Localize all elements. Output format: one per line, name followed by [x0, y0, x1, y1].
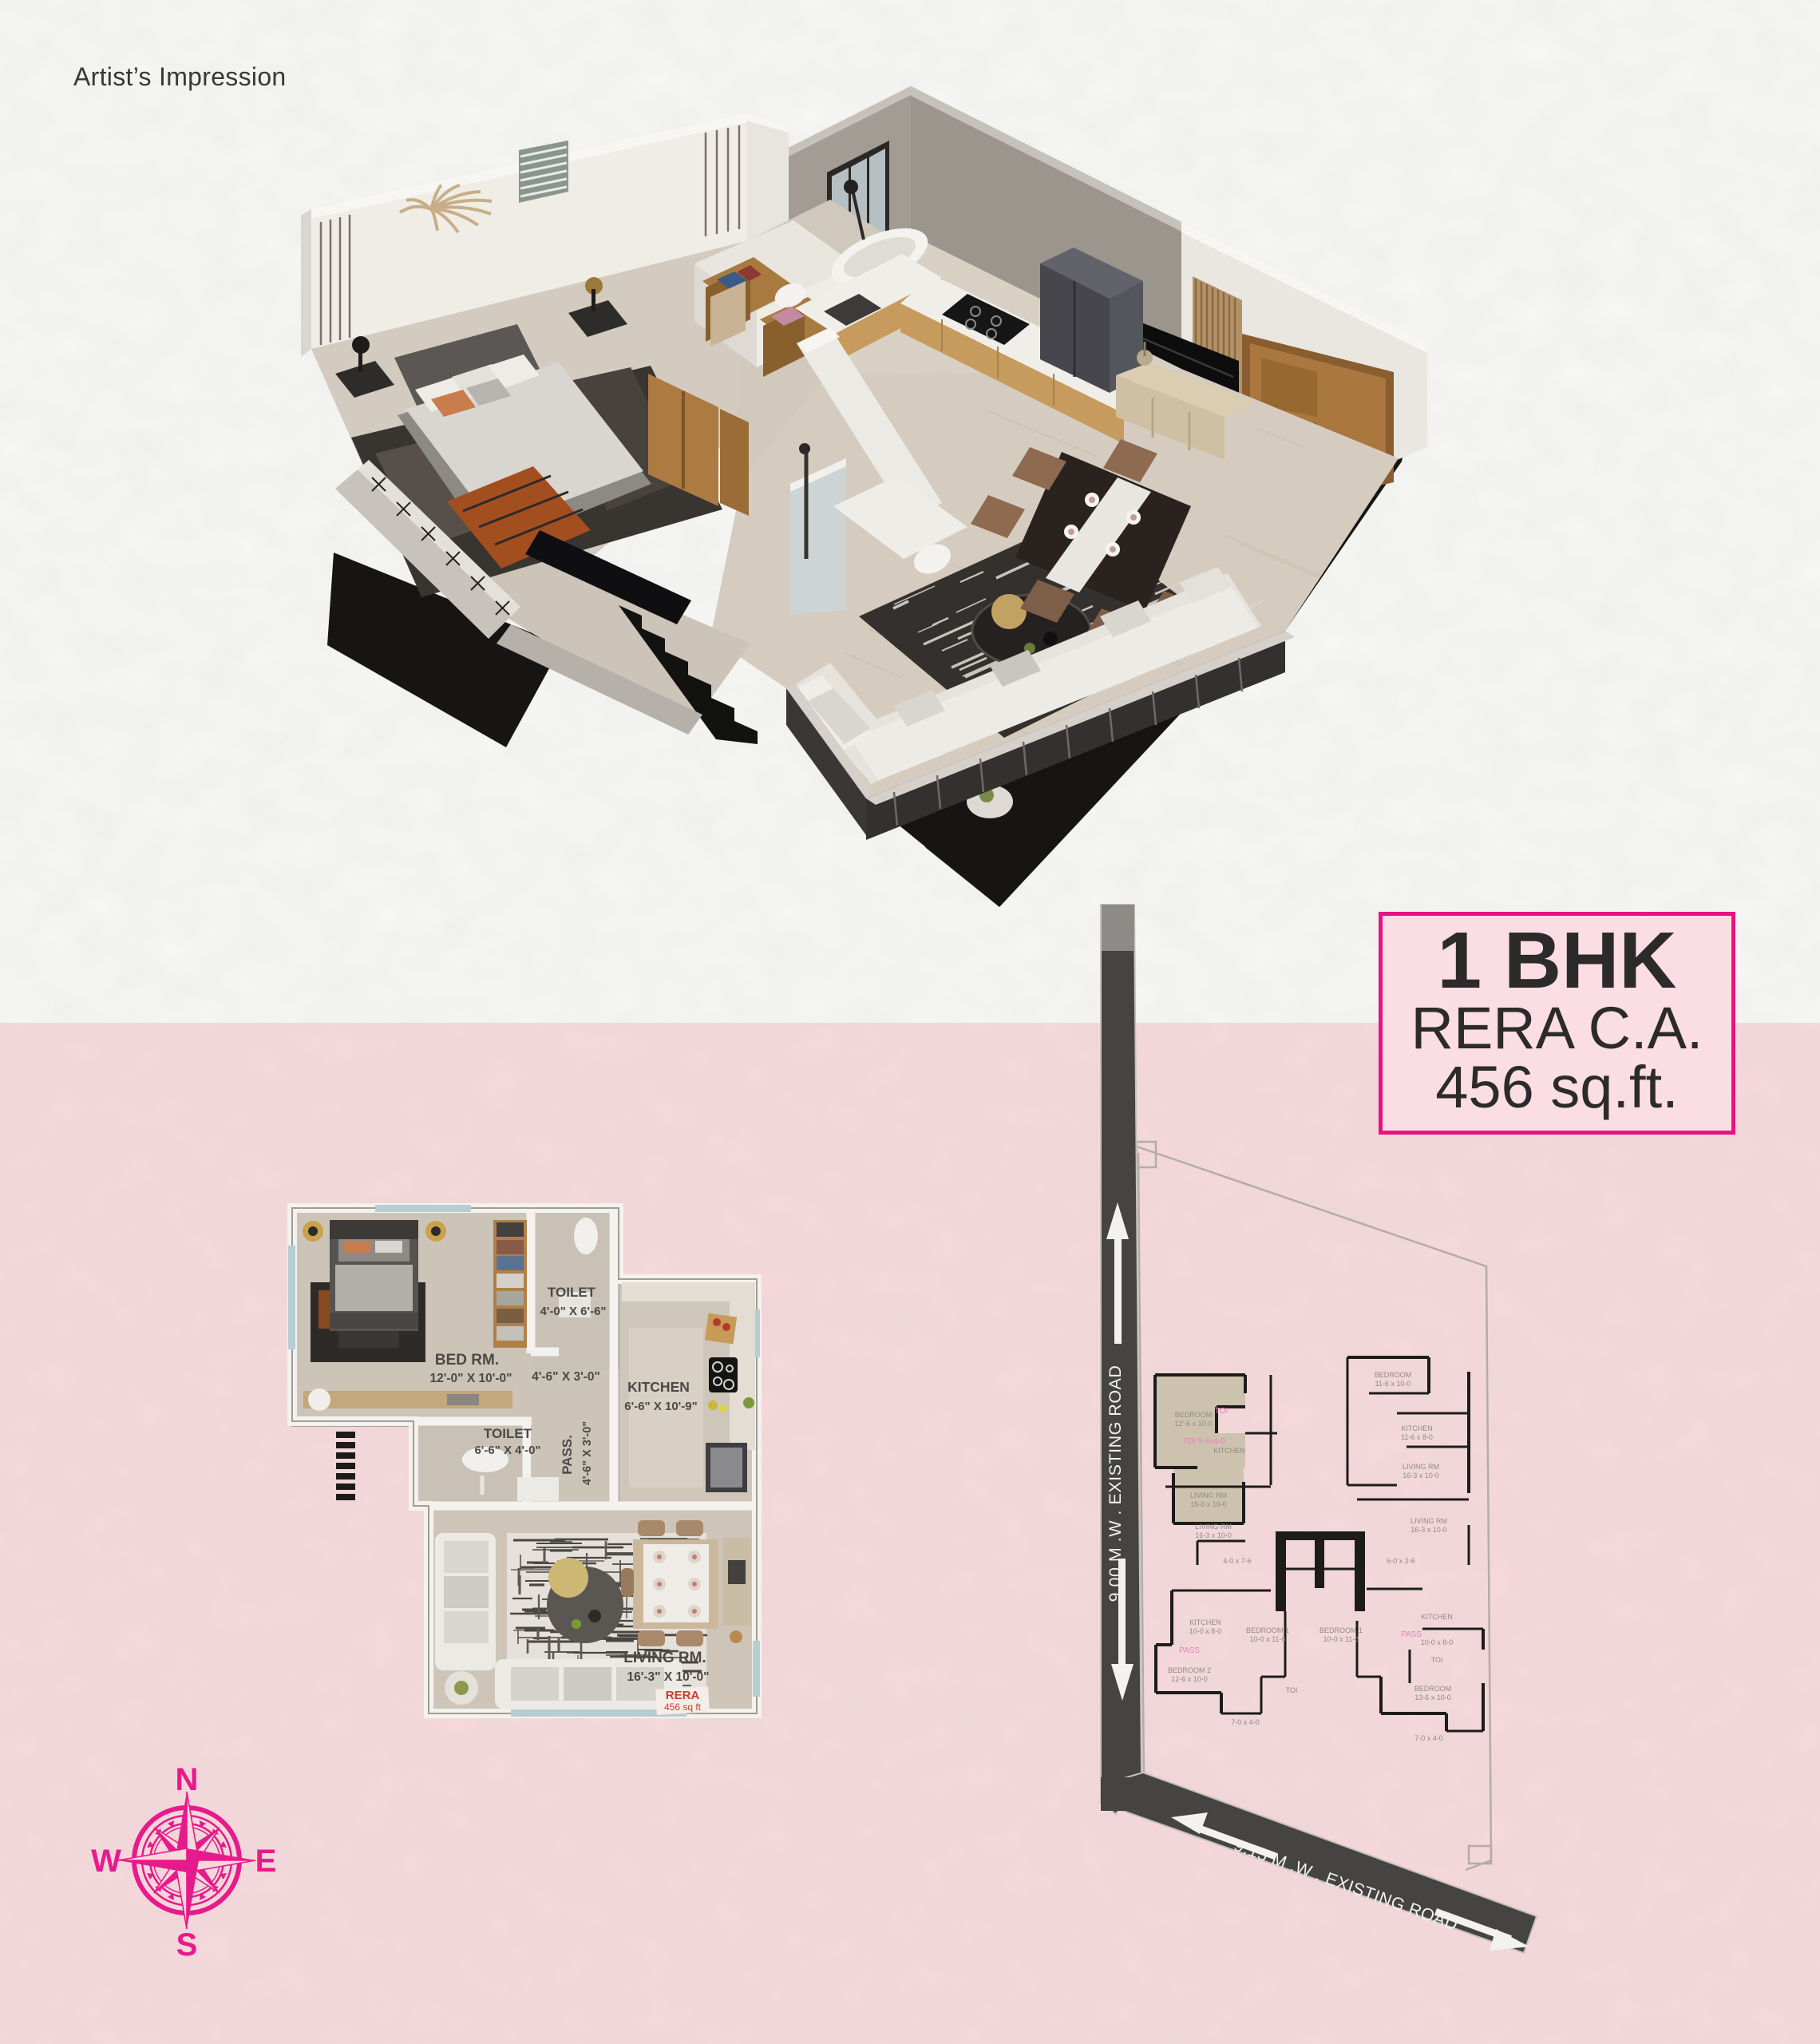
- svg-text:TOI: TOI: [1215, 1407, 1228, 1416]
- svg-text:16-3 x 10-0: 16-3 x 10-0: [1195, 1531, 1232, 1539]
- svg-text:BED RM.: BED RM.: [435, 1352, 499, 1369]
- svg-text:KITCHEN: KITCHEN: [627, 1379, 690, 1395]
- svg-text:LIVING RM: LIVING RM: [1410, 1517, 1447, 1525]
- svg-text:16-3 x 10-0: 16-3 x 10-0: [1403, 1472, 1439, 1480]
- svg-text:6'-6" X 4'-0": 6'-6" X 4'-0": [474, 1444, 540, 1457]
- svg-text:12'-6 x 10-0: 12'-6 x 10-0: [1174, 1420, 1212, 1428]
- svg-text:RERA: RERA: [666, 1689, 700, 1702]
- svg-text:16-3 x 10-0: 16-3 x 10-0: [1410, 1526, 1447, 1534]
- svg-text:10-0 x 8-0: 10-0 x 8-0: [1421, 1638, 1454, 1646]
- svg-text:12'-0" X 10'-0": 12'-0" X 10'-0": [429, 1372, 512, 1385]
- svg-text:E: E: [255, 1844, 277, 1879]
- svg-text:BEDROOM: BEDROOM: [1175, 1411, 1213, 1419]
- svg-text:6'-6" X 10'-9": 6'-6" X 10'-9": [624, 1400, 697, 1413]
- svg-text:BEDROOM 1: BEDROOM 1: [1246, 1626, 1289, 1634]
- svg-text:LIVING RM.: LIVING RM.: [623, 1650, 706, 1666]
- svg-text:TOI: TOI: [1286, 1686, 1298, 1694]
- svg-text:KITCHEN: KITCHEN: [1213, 1447, 1245, 1455]
- svg-text:7-0 x 4-0: 7-0 x 4-0: [1414, 1734, 1443, 1742]
- svg-text:PASS: PASS: [1179, 1646, 1200, 1655]
- svg-text:KITCHEN: KITCHEN: [1401, 1424, 1433, 1432]
- svg-text:N: N: [176, 1762, 199, 1797]
- svg-text:11-6 x 10-0: 11-6 x 10-0: [1375, 1380, 1411, 1388]
- svg-text:6-0 x 2-6: 6-0 x 2-6: [1387, 1557, 1415, 1565]
- svg-text:LIVING RM: LIVING RM: [1403, 1463, 1439, 1471]
- svg-text:4-0 x 7-6: 4-0 x 7-6: [1223, 1557, 1252, 1565]
- svg-text:TOILET: TOILET: [484, 1426, 532, 1441]
- svg-text:13-6 x 10-0: 13-6 x 10-0: [1414, 1693, 1451, 1701]
- svg-text:BEDROOM: BEDROOM: [1375, 1371, 1412, 1379]
- svg-text:TOI 5-6x4-0: TOI 5-6x4-0: [1182, 1437, 1225, 1446]
- svg-text:BEDROOM: BEDROOM: [1414, 1685, 1452, 1693]
- svg-text:PASS.: PASS.: [560, 1435, 575, 1475]
- svg-text:S: S: [176, 1927, 198, 1963]
- svg-text:16'-3" X 10'-0": 16'-3" X 10'-0": [627, 1670, 709, 1684]
- svg-text:456 sq ft: 456 sq ft: [664, 1701, 702, 1713]
- svg-text:4'-6" X 3'-0": 4'-6" X 3'-0": [581, 1421, 594, 1485]
- svg-text:W: W: [91, 1844, 121, 1879]
- svg-text:PASS: PASS: [1401, 1630, 1422, 1639]
- svg-text:KITCHEN: KITCHEN: [1421, 1613, 1453, 1621]
- svg-text:LIVING RM: LIVING RM: [1190, 1491, 1227, 1499]
- svg-text:KITCHEN: KITCHEN: [1189, 1618, 1221, 1626]
- svg-text:BEDROOM 1: BEDROOM 1: [1319, 1626, 1363, 1634]
- svg-text:10-0 x 8-0: 10-0 x 8-0: [1189, 1627, 1222, 1635]
- svg-text:11-6 x 8-0: 11-6 x 8-0: [1401, 1433, 1433, 1441]
- svg-text:7-0 x 4-0: 7-0 x 4-0: [1231, 1718, 1260, 1726]
- svg-text:4'-6" X 3'-0": 4'-6" X 3'-0": [532, 1370, 600, 1384]
- svg-text:LIVING RM: LIVING RM: [1195, 1523, 1232, 1531]
- svg-text:4'-0" X 6'-6": 4'-0" X 6'-6": [540, 1305, 606, 1318]
- svg-text:TOILET: TOILET: [548, 1285, 596, 1300]
- svg-text:9.00 M .W . EXISTING ROAD: 9.00 M .W . EXISTING ROAD: [1106, 1365, 1125, 1602]
- svg-text:BEDROOM 2: BEDROOM 2: [1168, 1666, 1211, 1674]
- svg-text:10-0 x 11-6: 10-0 x 11-6: [1250, 1635, 1286, 1643]
- svg-text:TOI: TOI: [1431, 1656, 1443, 1664]
- svg-text:10-0 x 11-6: 10-0 x 11-6: [1323, 1635, 1359, 1643]
- svg-text:16-0 x 10-0: 16-0 x 10-0: [1190, 1500, 1227, 1508]
- svg-text:12-6 x 10-0: 12-6 x 10-0: [1171, 1675, 1208, 1683]
